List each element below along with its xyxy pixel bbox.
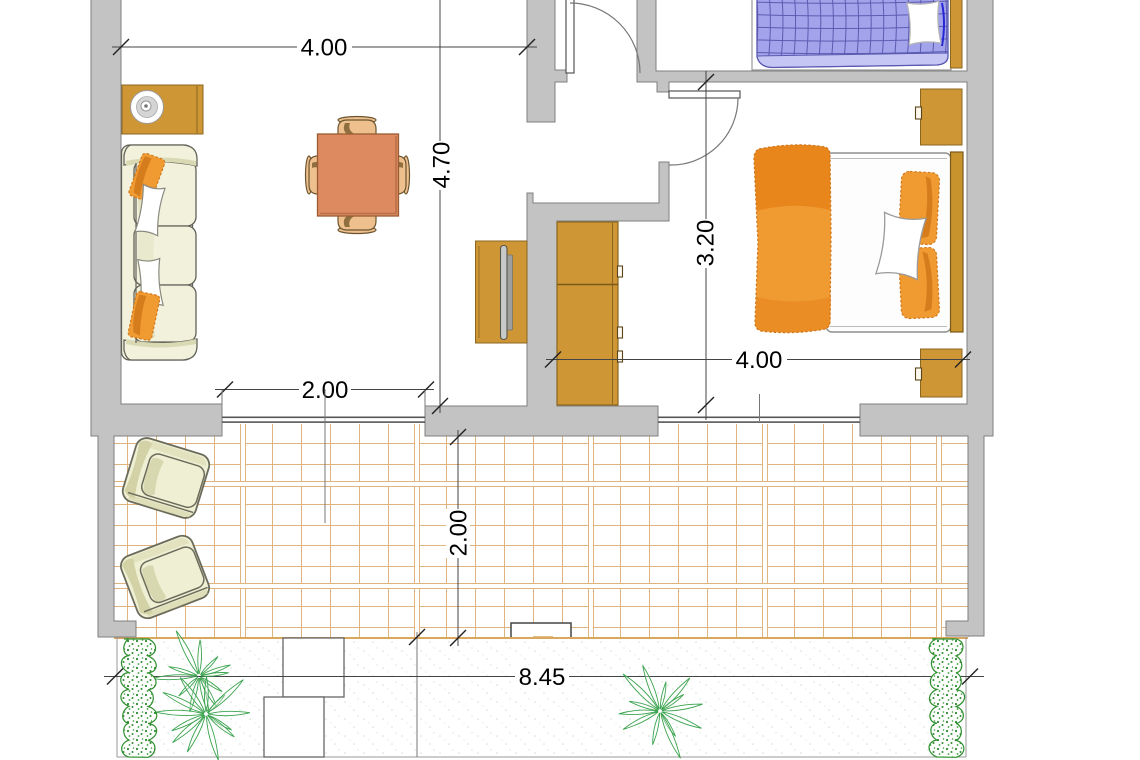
svg-text:4.00: 4.00: [736, 347, 783, 374]
svg-text:4.70: 4.70: [429, 142, 456, 189]
svg-text:3.20: 3.20: [693, 220, 720, 267]
svg-text:2.00: 2.00: [446, 510, 473, 557]
svg-text:4.00: 4.00: [301, 35, 348, 62]
svg-text:8.45: 8.45: [519, 664, 566, 691]
